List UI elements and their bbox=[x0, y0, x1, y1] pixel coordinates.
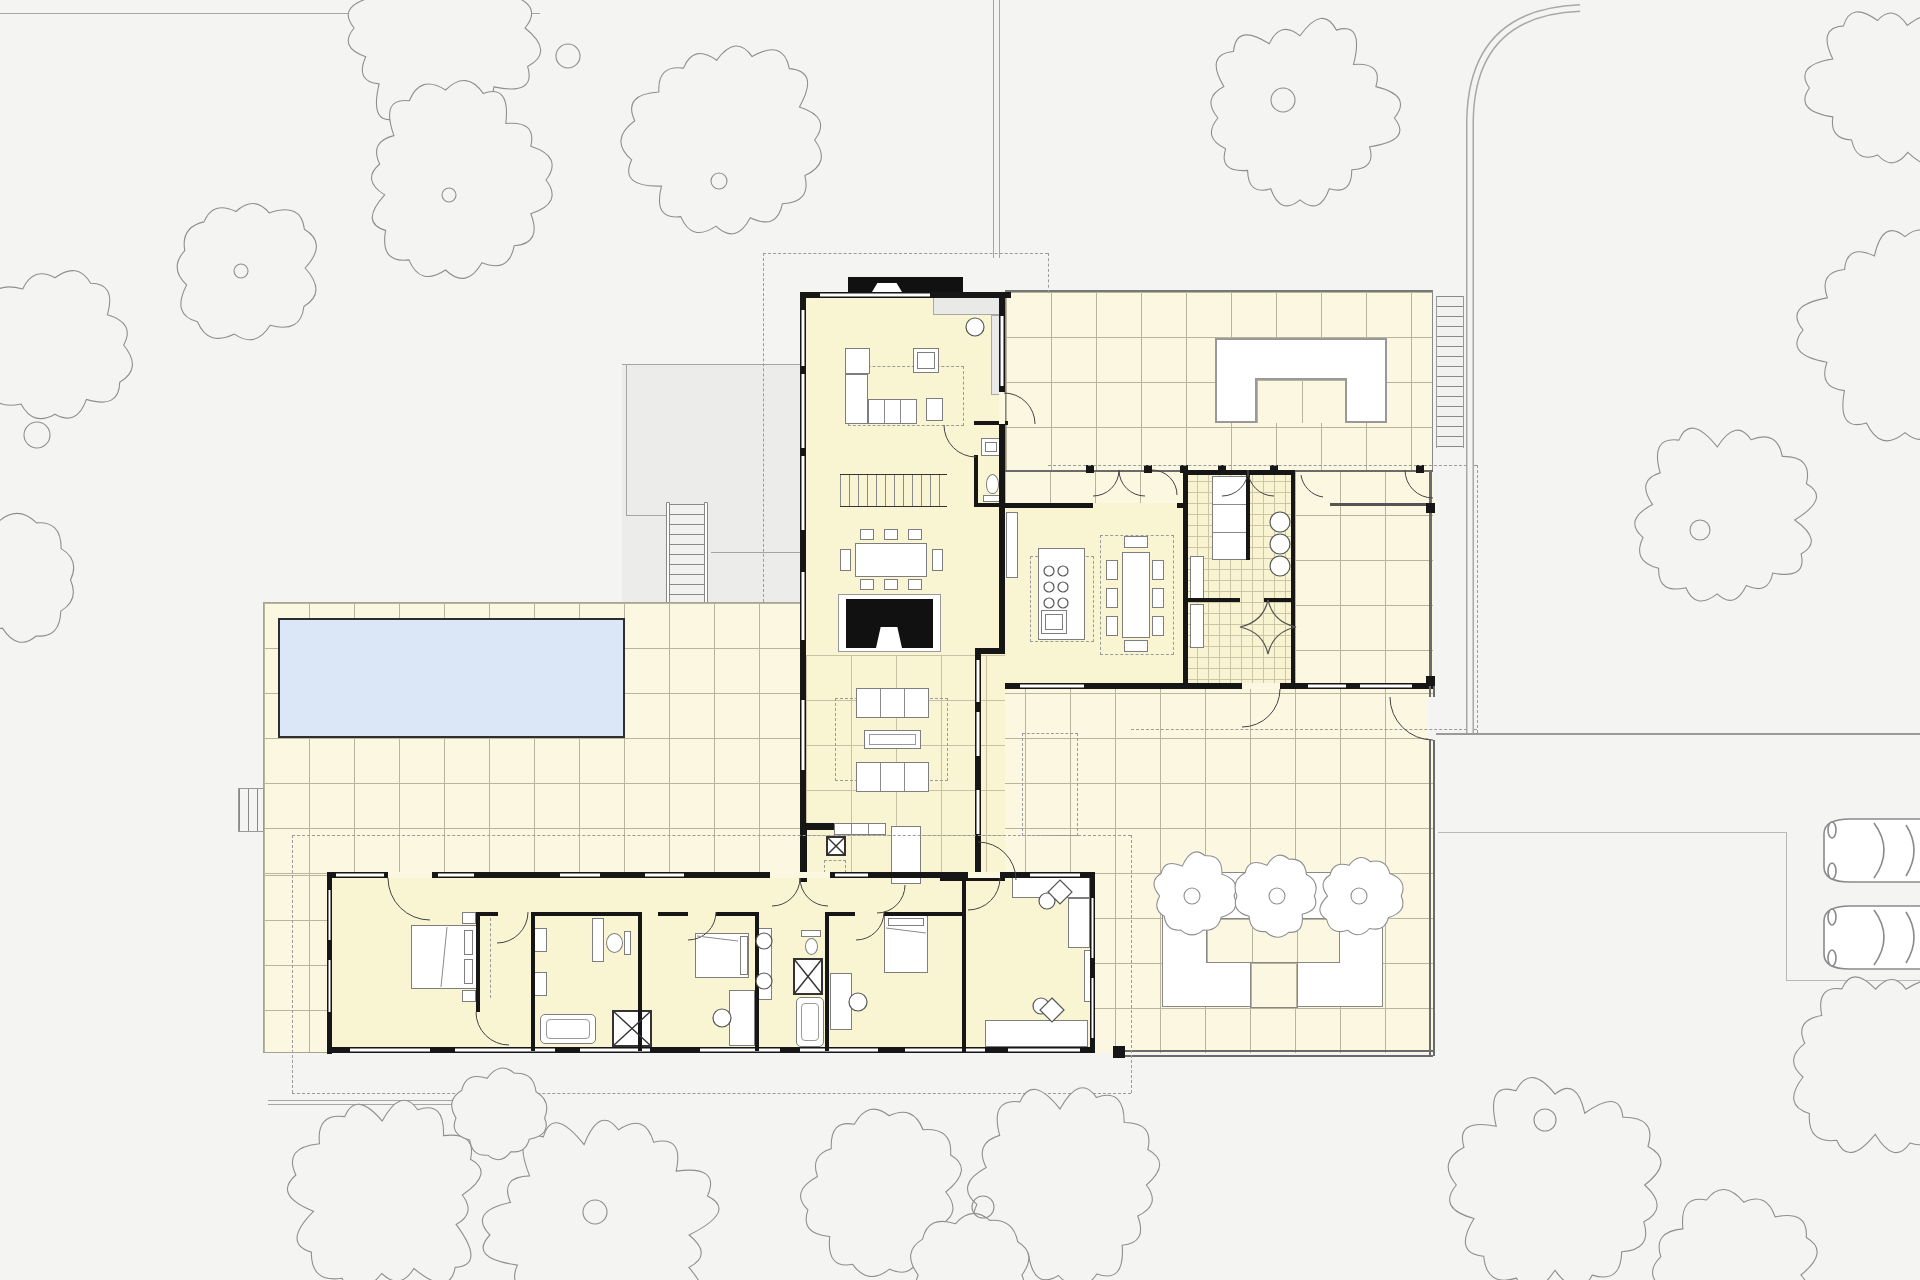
car-icon bbox=[1824, 819, 1920, 882]
burner bbox=[1058, 566, 1068, 576]
tree-canopy bbox=[177, 204, 316, 340]
footpath bbox=[1470, 8, 1580, 733]
sink bbox=[756, 973, 772, 989]
tank bbox=[1270, 534, 1290, 554]
tree-canopy bbox=[1448, 1078, 1661, 1280]
tree-canopy bbox=[1211, 18, 1401, 206]
site-trees bbox=[0, 0, 1920, 1280]
tree-canopy bbox=[1794, 977, 1920, 1153]
tree-canopy bbox=[1797, 230, 1920, 441]
tree-canopy bbox=[1805, 12, 1920, 166]
tree-canopy bbox=[1235, 855, 1316, 937]
floor-star bbox=[1240, 600, 1296, 654]
burner bbox=[1058, 598, 1068, 608]
tree-trunk bbox=[556, 44, 580, 68]
car-icon bbox=[1824, 906, 1920, 969]
drawing-overlay bbox=[0, 0, 1920, 1280]
tree-trunk bbox=[24, 422, 50, 448]
burner bbox=[1058, 582, 1068, 592]
burner bbox=[1044, 582, 1054, 592]
vehicles bbox=[1824, 819, 1920, 969]
tree-canopy bbox=[1635, 428, 1817, 601]
courtyard-trees bbox=[1154, 852, 1403, 937]
tree-canopy bbox=[0, 271, 132, 419]
site-plan-canvas bbox=[0, 0, 1920, 1280]
tree-canopy bbox=[1154, 852, 1236, 935]
burner bbox=[1044, 598, 1054, 608]
door-swings bbox=[388, 393, 1433, 1045]
sink bbox=[756, 933, 772, 949]
tree-canopy bbox=[0, 513, 74, 642]
tree-canopy bbox=[621, 46, 821, 234]
desk-chair bbox=[713, 1009, 731, 1027]
tree-canopy bbox=[1653, 1189, 1818, 1280]
desk-chair bbox=[849, 993, 867, 1011]
tree-canopy bbox=[372, 81, 553, 279]
bed-folds bbox=[441, 927, 926, 987]
column bbox=[966, 318, 984, 336]
tank bbox=[1270, 512, 1290, 532]
burner bbox=[1044, 566, 1054, 576]
tree-canopy bbox=[1320, 858, 1403, 935]
tank bbox=[1270, 556, 1290, 576]
tree-canopy bbox=[287, 1100, 481, 1280]
